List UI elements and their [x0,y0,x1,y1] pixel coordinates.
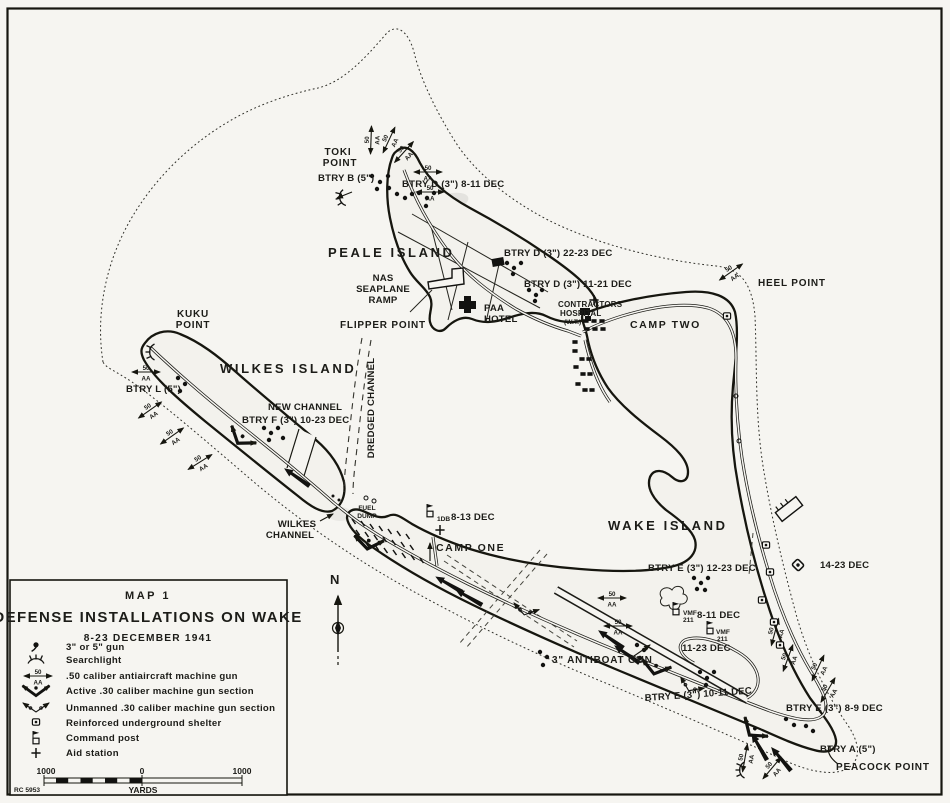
label-nas-2: SEAPLANE [356,284,410,295]
label-heel-point: HEEL POINT [758,278,826,289]
legend-title: DEFENSE INSTALLATIONS ON WAKE [0,609,303,626]
label-flipper-point: FLIPPER POINT [340,320,426,331]
label-hospital-2: HOSPITAL [560,309,601,318]
label-vmf1-date: 8-11 DEC [697,610,740,621]
map-svg: 50 AA [0,0,950,803]
label-wake-island: WAKE ISLAND [608,518,728,533]
legend-item-unmanned-mg: Unmanned .30 caliber machine gun section [66,703,275,714]
legend-item-aa-mg: .50 caliber antiaircraft machine gun [66,671,238,682]
legend-box: MAP 1 DEFENSE INSTALLATIONS ON WAKE 8-23… [0,580,303,795]
label-vmf1-num: 211 [683,617,694,624]
label-paa-1: PAA [484,303,504,314]
label-btry-d-8-11: BTRY D (3") 8-11 DEC [402,179,504,190]
label-hospital-1: CONTRACTORS [558,300,623,309]
label-cp-1db-date: 8-13 DEC [451,512,495,523]
label-wilkes-island: WILKES ISLAND [220,361,356,376]
label-peacock-point: PEACOCK POINT [836,762,930,773]
wake-island-map: 50 AA [0,0,950,803]
label-vmf2-date: 11-23 DEC [682,643,731,654]
label-kuku-point-1: KUKU [177,309,209,320]
label-wilkes-channel-2: CHANNEL [266,530,314,541]
label-cp-1db-unit: 1DB [437,516,450,523]
legend-item-shelter: Reinforced underground shelter [66,718,222,729]
label-nas-1: NAS [373,273,394,284]
legend-item-active-mg: Active .30 caliber machine gun section [66,686,254,697]
label-btry-f: BTRY F (3") 10-23 DEC [242,415,349,426]
label-btry-a: BTRY A (5") [820,744,876,755]
label-btry-e-8-9: BTRY E (3") 8-9 DEC [786,703,883,714]
label-new-channel: NEW CHANNEL [268,402,342,413]
legend-map-number: MAP 1 [125,590,171,602]
north-label: N [330,572,339,587]
plate-reference: RC 5953 [14,787,40,794]
label-btry-e-12-23: BTRY E (3") 12-23 DEC [648,563,756,574]
label-toki-point-2: POINT [323,158,358,169]
label-btry-l: BTRY L (5") [126,384,181,395]
legend-item-gun: 3" or 5" gun [66,642,125,653]
scale-middle-label: 0 [140,766,145,776]
scale-left-label: 1000 [37,766,56,776]
legend-item-command-post: Command post [66,733,140,744]
scale-units-label: YARDS [129,785,158,795]
label-dredged-channel: DREDGED CHANNEL [366,358,377,459]
label-shelter-14-23: 14-23 DEC [820,560,869,571]
label-btry-d-11-21: BTRY D (3") 11-21 DEC [524,279,632,290]
legend-item-searchlight: Searchlight [66,655,122,666]
label-peale-island: PEALE ISLAND [328,245,455,260]
label-fuel-1: FUEL [358,505,375,512]
label-kuku-point-2: POINT [176,320,211,331]
label-hospital-3: (W.T.) [564,319,581,326]
label-vmf2-num: 211 [717,636,728,643]
legend-item-aid-station: Aid station [66,748,119,759]
label-camp-one: CAMP ONE [436,542,505,554]
label-btry-d-22-23: BTRY D (3") 22-23 DEC [504,248,612,259]
label-vmf2-unit: VMF [716,629,730,636]
label-toki-point-1: TOKI [325,147,352,158]
label-antiboat-gun: 3" ANTIBOAT GUN [552,655,653,666]
scale-right-label: 1000 [233,766,252,776]
label-vmf1-unit: VMF [683,610,697,617]
label-btry-b: BTRY B (5") [318,173,374,184]
label-wilkes-channel-1: WILKES [278,519,317,530]
label-fuel-2: DUMP [357,513,377,520]
label-nas-3: RAMP [368,295,397,306]
label-camp-two: CAMP TWO [630,319,701,331]
label-paa-2: HOTEL [484,314,518,325]
